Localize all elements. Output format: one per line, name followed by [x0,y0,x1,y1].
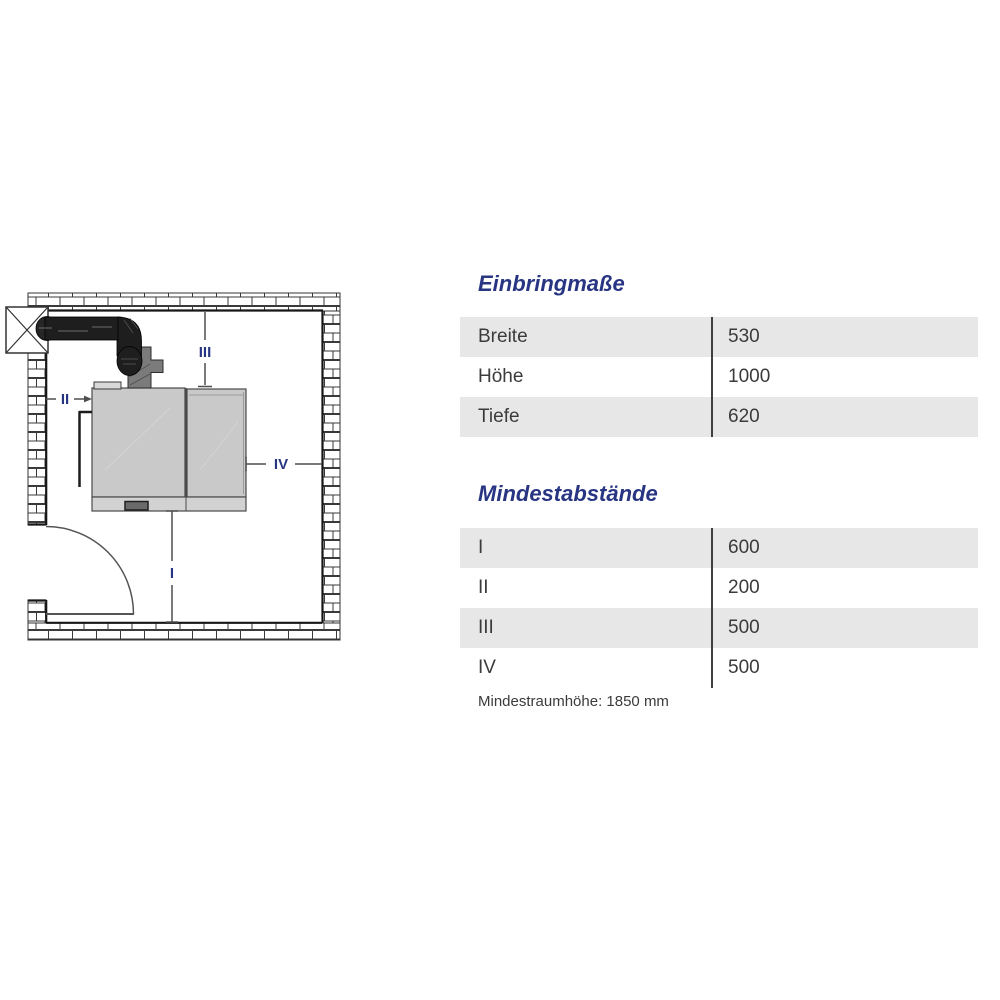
section-title-mindestabstaende: Mindestabstände [478,481,658,507]
table-row: II 200 [460,568,978,608]
row-label: Tiefe [460,397,712,437]
table-row: III 500 [460,608,978,648]
row-value: 620 [712,397,760,437]
table-row: IV 500 [460,648,978,688]
row-label: IV [460,648,712,688]
installation-room-diagram: II III IV I [0,280,380,665]
row-value: 600 [712,528,760,568]
dimension-marker-iv: IV [246,456,322,473]
row-label: III [460,608,712,648]
row-label: Breite [460,317,712,357]
boiler-control-box [94,382,121,389]
door-swing [46,527,134,615]
flue-pipe [36,317,142,376]
dimension-marker-i: I [166,511,178,622]
section-title-einbringmasse: Einbringmaße [478,271,625,297]
row-label: II [460,568,712,608]
boiler-base [92,497,246,511]
row-value: 500 [712,608,760,648]
table-row: I 600 [460,528,978,568]
einbringmasse-table: Breite 530 Höhe 1000 Tiefe 620 [460,317,978,437]
marker-i-label: I [170,565,174,582]
boiler-unit [80,382,247,511]
table-row: Tiefe 620 [460,397,978,437]
row-value: 1000 [712,357,770,397]
row-label: I [460,528,712,568]
row-value: 530 [712,317,760,357]
marker-iv-label: IV [274,456,288,473]
boiler-nameplate [125,502,148,511]
dimension-marker-iii: III [198,312,212,387]
boiler-handle [80,412,93,487]
table-row: Breite 530 [460,317,978,357]
marker-iii-label: III [199,344,212,361]
room-plan-svg: II III IV I [0,280,380,660]
min-room-height-note: Mindestraumhöhe: 1850 mm [478,693,669,710]
column-divider [711,528,713,688]
marker-ii-label: II [61,391,69,408]
mindestabstaende-table: I 600 II 200 III 500 IV 500 [460,528,978,688]
column-divider [711,317,713,437]
dimension-marker-ii: II [46,391,92,408]
table-row: Höhe 1000 [460,357,978,397]
row-value: 500 [712,648,760,688]
row-label: Höhe [460,357,712,397]
row-value: 200 [712,568,760,608]
